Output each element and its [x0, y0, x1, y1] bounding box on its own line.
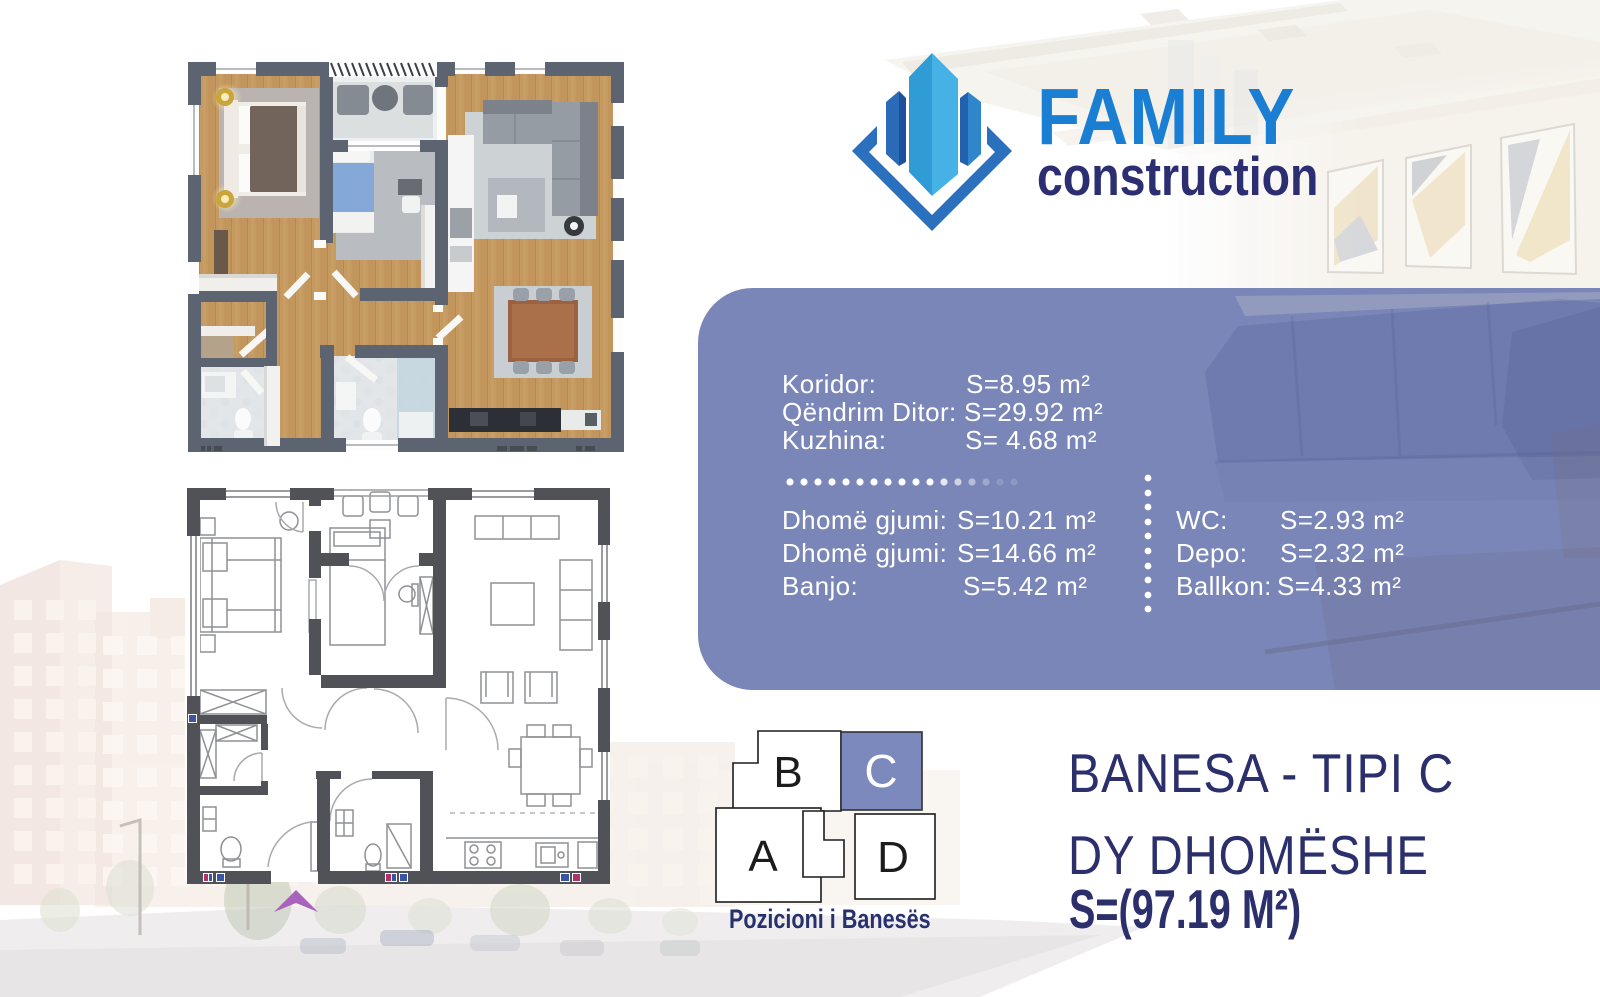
svg-text:B: B [773, 748, 802, 797]
svg-text:D: D [877, 833, 909, 882]
svg-text:A: A [748, 832, 778, 881]
svg-text:C: C [864, 745, 897, 797]
